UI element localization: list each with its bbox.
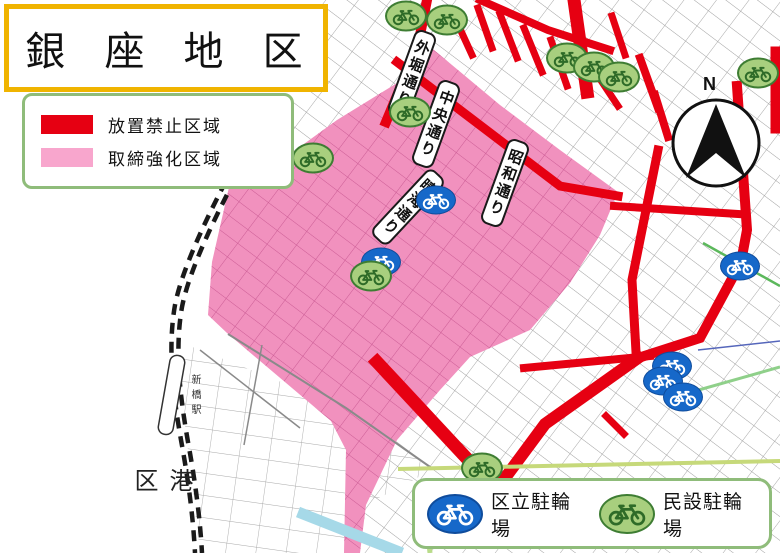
- ward-parking-marker: [720, 252, 760, 281]
- parking-legend-item: 区立駐輪場: [427, 487, 585, 541]
- enforcement-zone-label: 取締強化区域: [108, 145, 222, 170]
- zone-legend-row: 放置禁止区域: [41, 112, 275, 137]
- private-parking-marker: [385, 1, 427, 32]
- parking-legend-item: 民設駐輪場: [599, 487, 757, 541]
- no-parking-zone-swatch: [41, 115, 93, 134]
- map-title-text: 銀 座 地 区: [25, 19, 316, 77]
- private-parking-marker: [598, 62, 640, 93]
- private-parking-marker: [389, 97, 431, 128]
- ward-parking-icon: [427, 494, 483, 534]
- ward-parking-marker: [663, 383, 703, 412]
- map-title: 銀 座 地 区: [4, 4, 328, 92]
- zone-legend-row: 取締強化区域: [41, 145, 275, 170]
- private-parking-icon: [599, 494, 655, 534]
- shimbashi-station-label: 新橋駅: [187, 374, 202, 419]
- ginza-district-map: N 港区 新橋駅 外堀通り中央通り昭和通り晴海通り 銀 座 地 区 放置禁止区域…: [0, 0, 780, 553]
- minato-ward-label: 港区: [126, 468, 196, 553]
- no-parking-zone-label: 放置禁止区域: [108, 112, 222, 137]
- enforcement-zone-swatch: [41, 148, 93, 167]
- private-parking-marker: [292, 143, 334, 174]
- street-label: 昭和通り: [479, 137, 531, 229]
- private-parking-marker: [350, 261, 392, 292]
- compass-north-label: N: [703, 74, 716, 95]
- private-parking-marker: [737, 58, 779, 89]
- parking-legend: 区立駐輪場 民設駐輪場: [412, 478, 772, 549]
- ward-parking-label: 区立駐輪場: [491, 487, 585, 541]
- zone-legend: 放置禁止区域 取締強化区域: [22, 93, 294, 189]
- private-parking-marker: [426, 5, 468, 36]
- private-parking-label: 民設駐輪場: [663, 487, 757, 541]
- ward-parking-marker: [416, 186, 456, 215]
